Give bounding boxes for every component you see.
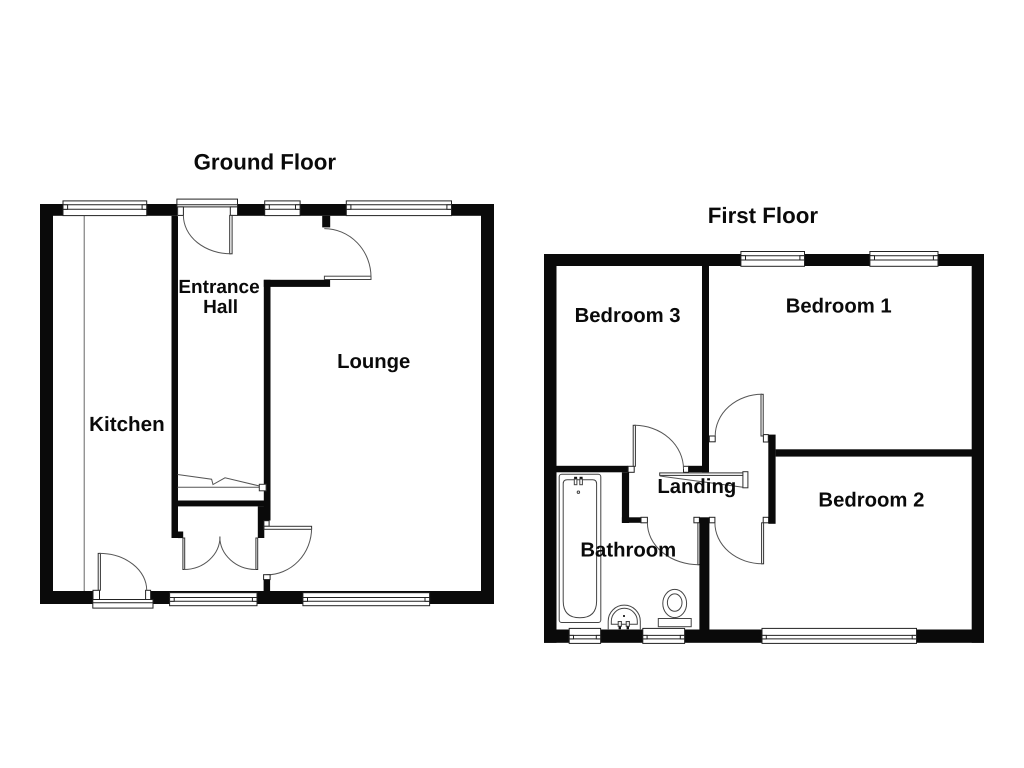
svg-text:Entrance: Entrance xyxy=(178,277,259,298)
svg-text:Bedroom 3: Bedroom 3 xyxy=(575,305,681,327)
svg-text:Bedroom 1: Bedroom 1 xyxy=(786,296,892,318)
svg-text:First Floor: First Floor xyxy=(708,203,819,228)
svg-text:Bedroom 2: Bedroom 2 xyxy=(818,490,924,512)
svg-text:Hall: Hall xyxy=(203,297,238,318)
svg-text:Bathroom: Bathroom xyxy=(580,539,676,561)
svg-text:Ground Floor: Ground Floor xyxy=(194,150,337,175)
svg-text:Landing: Landing xyxy=(657,476,736,498)
svg-text:Lounge: Lounge xyxy=(337,351,410,373)
svg-text:Kitchen: Kitchen xyxy=(89,413,165,436)
